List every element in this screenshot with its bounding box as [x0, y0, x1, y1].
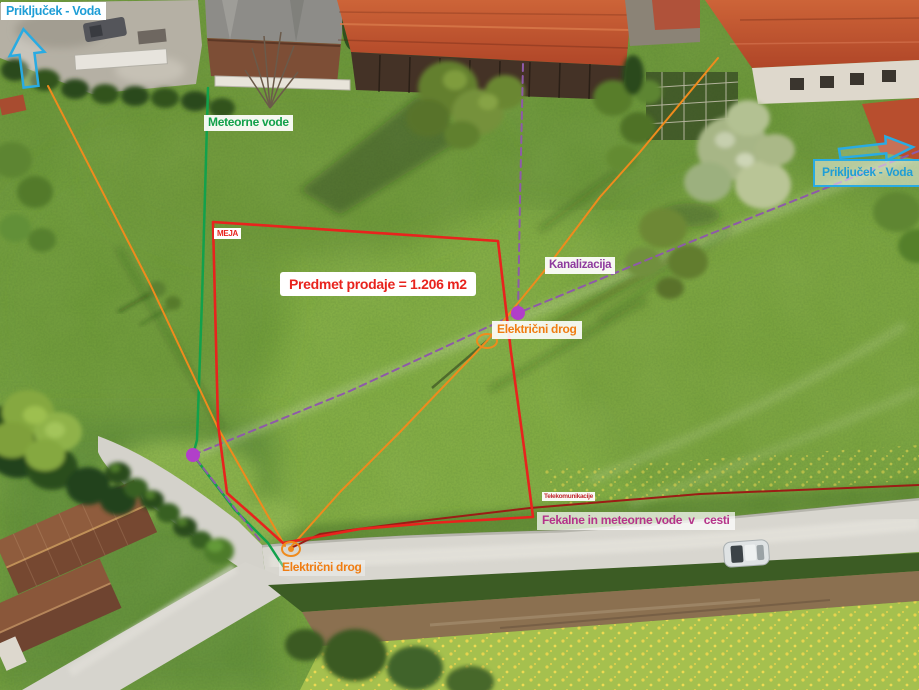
- label-boundary: MEJA: [214, 228, 241, 239]
- label-power-pole-middle: Električni drog: [492, 321, 582, 339]
- label-water-connection-left: Priključek - Voda: [1, 2, 106, 20]
- sewer-manhole-marker: [511, 306, 525, 320]
- label-power-pole-bottom: Električni drog: [279, 560, 365, 576]
- label-telecom: Telekomunikacije: [542, 492, 595, 501]
- sewer-manhole-marker: [186, 448, 200, 462]
- label-sewage-storm-in-road: Fekalne in meteorne vode v cesti: [537, 512, 735, 530]
- white-car: [723, 539, 770, 567]
- label-water-connection-right: Priključek - Voda: [813, 159, 919, 187]
- label-storm-water: Meteorne vode: [204, 115, 293, 131]
- label-sale-subject-area: Predmet prodaje = 1.206 m2: [280, 272, 476, 296]
- aerial-site-plan: Priključek - Voda Meteorne vode MEJA Pre…: [0, 0, 919, 690]
- label-sewer: Kanalizacija: [545, 257, 615, 274]
- scene-photo: [0, 0, 919, 690]
